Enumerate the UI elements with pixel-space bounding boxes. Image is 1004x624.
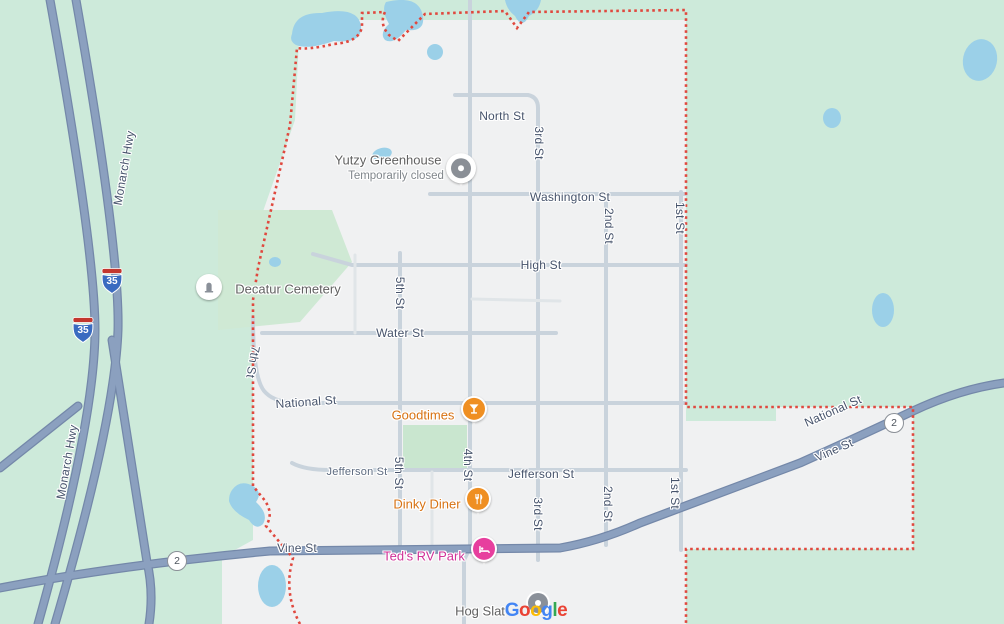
google-logo[interactable]: Google: [505, 600, 567, 622]
decatur-cemetery-marker[interactable]: [196, 274, 222, 300]
map-canvas[interactable]: North St 3rd St Washington St 2nd St 1st…: [0, 0, 1004, 624]
yutzy-greenhouse-status: Temporarily closed: [348, 170, 444, 182]
green-strip: [686, 407, 776, 421]
dinky-diner-label[interactable]: Dinky Diner: [393, 497, 460, 512]
street-label-water-st: Water St: [376, 326, 424, 340]
goodtimes-label[interactable]: Goodtimes: [392, 408, 455, 423]
street-label-4th-st: 4th St: [461, 449, 475, 482]
street-label-high-st: High St: [521, 258, 562, 272]
route-2-shield-west: 2: [167, 551, 187, 571]
route-2-shield-east: 2: [884, 413, 904, 433]
interstate-35-shield-upper: 35: [100, 268, 124, 294]
fork-knife-icon: [472, 493, 484, 505]
street-label-5th-st-lower: 5th St: [392, 457, 406, 490]
street-label-3rd-st-lower: 3rd St: [531, 497, 545, 530]
pin-hole: [458, 165, 464, 171]
street-label-jefferson-st-west: Jefferson St: [327, 466, 388, 478]
street-label-3rd-st-upper: 3rd St: [532, 126, 546, 159]
hog-slat-label[interactable]: Hog Slat: [455, 604, 505, 619]
tombstone-icon: [202, 280, 216, 294]
goodtimes-marker[interactable]: [461, 396, 487, 427]
town-area: [222, 20, 913, 624]
street-label-2nd-st-upper: 2nd St: [602, 208, 616, 244]
map-base-graphics: [0, 0, 1004, 624]
teds-rv-park-marker[interactable]: [471, 536, 497, 567]
decatur-cemetery-label[interactable]: Decatur Cemetery: [235, 282, 340, 297]
yutzy-greenhouse-label[interactable]: Yutzy Greenhouse: [335, 153, 442, 168]
bed-icon: [478, 542, 491, 555]
street-label-washington-st: Washington St: [530, 190, 610, 204]
street-label-1st-st-upper: 1st St: [673, 202, 687, 234]
martini-glass-icon: [468, 403, 480, 415]
teds-rv-park-label[interactable]: Ted's RV Park: [383, 549, 465, 564]
street-label-5th-st-upper: 5th St: [393, 277, 407, 310]
street-label-jefferson-st-east: Jefferson St: [508, 467, 574, 481]
dinky-diner-marker[interactable]: [465, 486, 491, 517]
street-label-north-st: North St: [479, 109, 525, 123]
street-label-vine-st-west: Vine St: [277, 541, 317, 555]
park-area: [403, 425, 467, 469]
street-label-1st-st-lower: 1st St: [668, 477, 682, 509]
interstate-35-shield-lower: 35: [71, 317, 95, 343]
street-label-2nd-st-lower: 2nd St: [601, 486, 615, 522]
yutzy-greenhouse-marker[interactable]: [446, 153, 476, 189]
